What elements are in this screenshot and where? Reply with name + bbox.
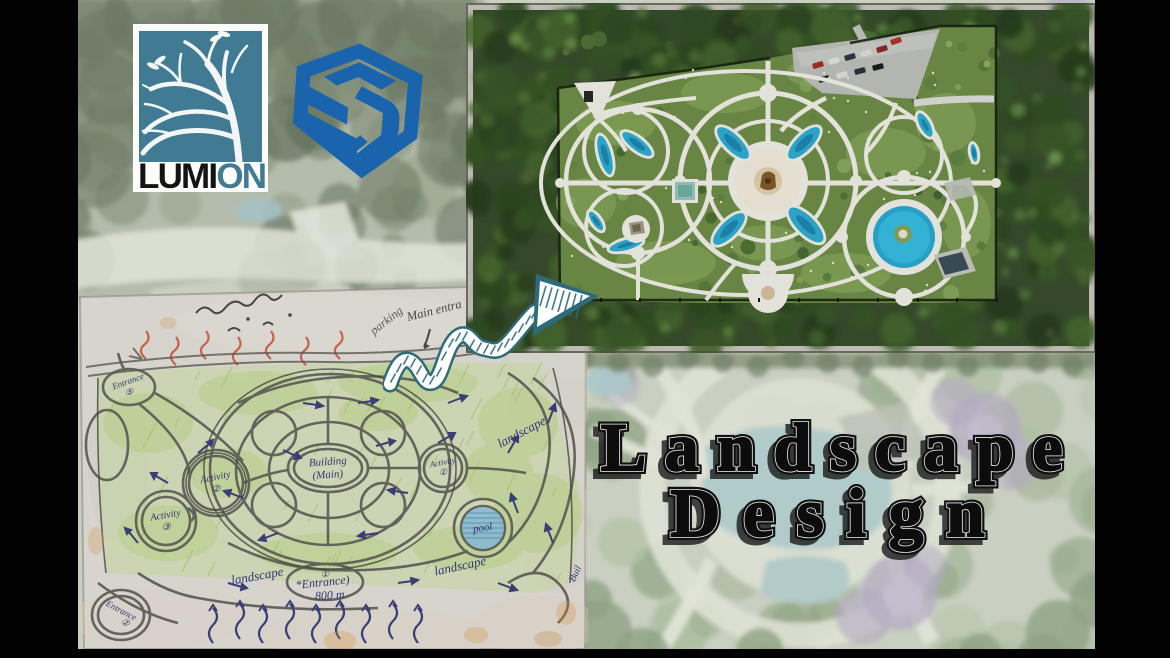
svg-text:②: ② [212,484,222,495]
svg-text:③: ③ [162,522,172,533]
svg-text:Design: Design [670,475,1007,551]
svg-text:(Main): (Main) [312,468,344,482]
svg-text:①: ① [439,467,448,477]
svg-text:Landscape: Landscape [601,409,1081,485]
svg-text:⑤: ⑤ [125,387,134,397]
svg-text:LUMION: LUMION [138,157,265,192]
